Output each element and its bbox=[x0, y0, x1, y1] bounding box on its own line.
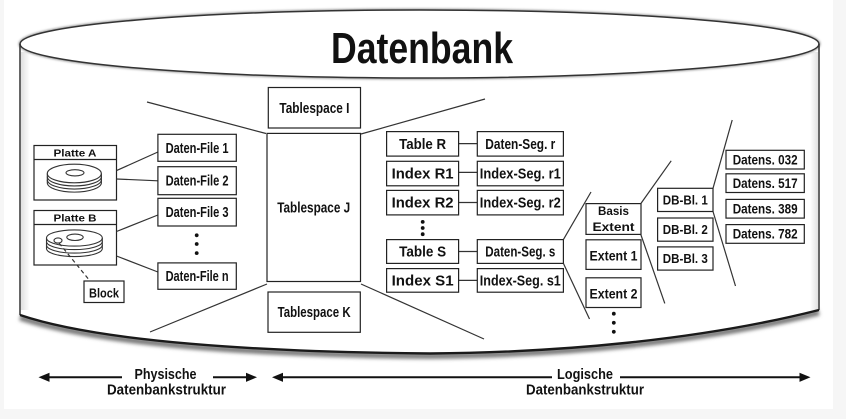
svg-text:Datens. 389: Datens. 389 bbox=[733, 201, 798, 216]
svg-text:Block: Block bbox=[89, 286, 119, 300]
svg-text:Tablespace K: Tablespace K bbox=[278, 304, 351, 321]
svg-text:Datens. 782: Datens. 782 bbox=[733, 227, 798, 242]
svg-text:Index R1: Index R1 bbox=[392, 166, 454, 183]
svg-text:Daten-File n: Daten-File n bbox=[166, 268, 229, 285]
svg-text:Datenbankstruktur: Datenbankstruktur bbox=[526, 383, 644, 399]
svg-text:DB-Bl. 3: DB-Bl. 3 bbox=[663, 252, 708, 266]
svg-text:Extent: Extent bbox=[593, 220, 635, 234]
svg-text:Daten-File 2: Daten-File 2 bbox=[166, 173, 229, 190]
svg-text:Extent 1: Extent 1 bbox=[590, 248, 638, 263]
svg-text:Platte B: Platte B bbox=[54, 212, 97, 224]
svg-text:Datenbank: Datenbank bbox=[331, 24, 513, 73]
svg-text:Tablespace J: Tablespace J bbox=[277, 200, 350, 217]
svg-text:Table R: Table R bbox=[399, 136, 446, 153]
svg-text:Table S: Table S bbox=[399, 244, 446, 261]
svg-text:Daten-File 1: Daten-File 1 bbox=[166, 140, 229, 157]
svg-text:Index-Seg. r2: Index-Seg. r2 bbox=[480, 195, 561, 212]
svg-text:DB-Bl. 2: DB-Bl. 2 bbox=[663, 223, 708, 237]
svg-text:Daten-File 3: Daten-File 3 bbox=[166, 204, 229, 221]
svg-text:Index-Seg. r1: Index-Seg. r1 bbox=[480, 166, 561, 183]
svg-text:Logische: Logische bbox=[557, 367, 613, 383]
svg-text:Basis: Basis bbox=[598, 204, 629, 218]
svg-text:Extent 2: Extent 2 bbox=[590, 286, 638, 301]
svg-text:Platte A: Platte A bbox=[54, 147, 97, 159]
svg-text:Daten-Seg. s: Daten-Seg. s bbox=[485, 244, 555, 261]
svg-text:Tablespace I: Tablespace I bbox=[279, 100, 349, 117]
svg-text:Datens. 032: Datens. 032 bbox=[733, 152, 798, 167]
svg-text:Index S1: Index S1 bbox=[392, 272, 454, 289]
svg-text:Datenbankstruktur: Datenbankstruktur bbox=[107, 383, 226, 399]
svg-text:DB-Bl. 1: DB-Bl. 1 bbox=[663, 193, 708, 207]
svg-text:Daten-Seg. r: Daten-Seg. r bbox=[485, 136, 555, 153]
svg-text:Physische: Physische bbox=[135, 367, 197, 383]
svg-text:Datens. 517: Datens. 517 bbox=[733, 176, 798, 191]
svg-text:Index-Seg. s1: Index-Seg. s1 bbox=[480, 272, 561, 289]
svg-text:Index R2: Index R2 bbox=[392, 195, 454, 212]
